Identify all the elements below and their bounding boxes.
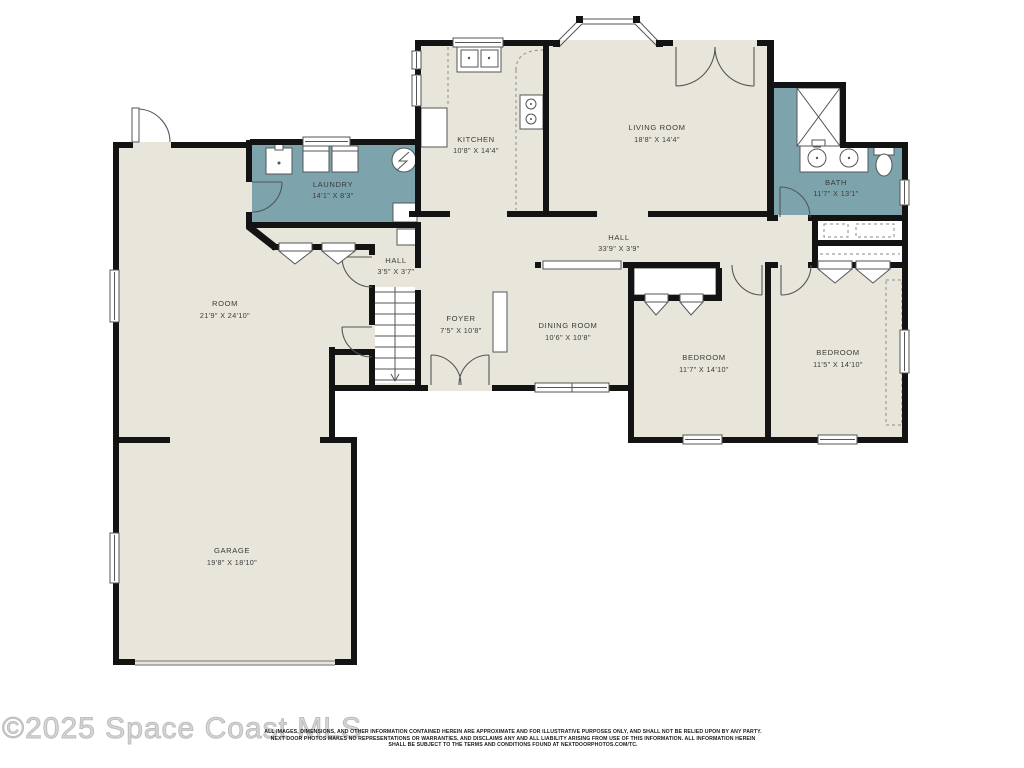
label-laundry: LAUNDRY [313,180,353,189]
dims-bedroom-2: 11'5" X 14'10" [813,360,863,369]
label-bath: BATH [825,178,847,187]
disclaimer-line-2: NEXT DOOR PHOTOS MAKES NO REPRESENTATION… [253,736,773,743]
washer [303,146,329,172]
dims-bedroom-1: 11'7" X 14'10" [679,365,729,374]
dims-foyer: 7'5" X 10'8" [440,326,481,335]
label-dining-room: DINING ROOM [539,321,598,330]
stove [520,95,543,129]
cased-opening [543,261,621,269]
floor-plan: KITCHEN 10'8" X 14'4" LIVING ROOM 18'8" … [0,0,1024,710]
dryer [332,146,358,172]
label-living-room: LIVING ROOM [628,123,685,132]
double-vanity [800,146,868,172]
label-garage: GARAGE [214,546,250,555]
dims-hall: 33'9" X 3'9" [598,244,639,253]
disclaimer-line-1: ALL IMAGES, DIMENSIONS, AND OTHER INFORM… [253,729,773,736]
dims-laundry: 14'1" X 8'3" [312,191,353,200]
dims-bath: 11'7" X 13'1" [813,189,858,198]
dims-living-room: 18'8" X 14'4" [634,135,680,144]
refrigerator [421,108,447,147]
laundry-sink [266,144,292,174]
label-hall: HALL [608,233,629,242]
disclaimer-line-3: SHALL BE SUBJECT TO THE TERMS AND CONDIT… [253,742,773,749]
stairs-down [375,287,415,383]
label-bedroom-1: BEDROOM [682,353,725,362]
water-heater [392,148,416,172]
label-hall-small: HALL [385,256,406,265]
label-room: ROOM [212,299,238,308]
dims-hall-small: 3'5" X 3'7" [377,267,414,276]
dims-room: 21'9" X 24'10" [200,311,250,320]
label-bedroom-2: BEDROOM [816,348,859,357]
shower [797,88,840,146]
dims-dining-room: 10'6" X 10'8" [545,333,591,342]
label-kitchen: KITCHEN [457,135,495,144]
dims-kitchen: 10'8" X 14'4" [453,146,499,155]
dims-garage: 19'8" X 18'10" [207,558,257,567]
disclaimer: ALL IMAGES, DIMENSIONS, AND OTHER INFORM… [253,729,773,749]
label-foyer: FOYER [446,314,475,323]
